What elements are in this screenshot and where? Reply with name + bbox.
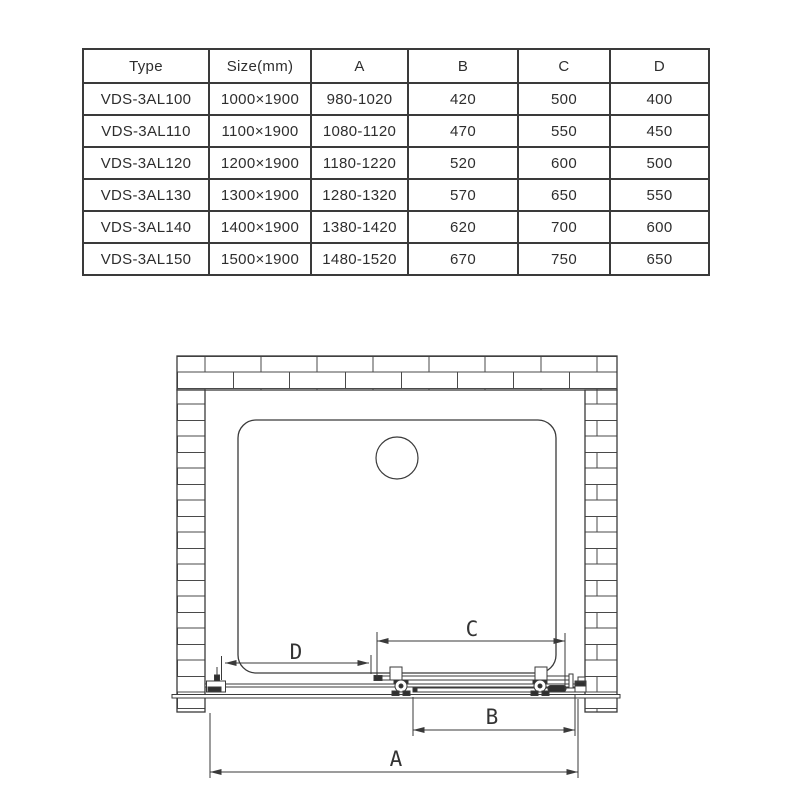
cell-d: 450 [610, 115, 709, 147]
table-row: VDS-3AL110 1100×1900 1080-1120 470 550 4… [83, 115, 709, 147]
cell-c: 750 [518, 243, 610, 275]
cell-d: 500 [610, 147, 709, 179]
cell-type: VDS-3AL110 [83, 115, 209, 147]
shower-enclosure-plan-drawing: D C B A [0, 340, 800, 800]
cell-c: 600 [518, 147, 610, 179]
cell-type: VDS-3AL120 [83, 147, 209, 179]
right-wall [585, 390, 617, 712]
header-size: Size(mm) [209, 49, 311, 83]
header-a: A [311, 49, 408, 83]
header-b: B [408, 49, 518, 83]
top-wall [177, 356, 617, 390]
drain-circle [376, 437, 418, 479]
cell-d: 550 [610, 179, 709, 211]
cell-a: 1280-1320 [311, 179, 408, 211]
cell-d: 650 [610, 243, 709, 275]
table-row: VDS-3AL120 1200×1900 1180-1220 520 600 5… [83, 147, 709, 179]
table-row: VDS-3AL140 1400×1900 1380-1420 620 700 6… [83, 211, 709, 243]
cell-a: 1180-1220 [311, 147, 408, 179]
dim-label-d: D [290, 640, 303, 664]
door-assembly [172, 667, 620, 698]
table-header-row: Type Size(mm) A B C D [83, 49, 709, 83]
table-row: VDS-3AL150 1500×1900 1480-1520 670 750 6… [83, 243, 709, 275]
panel1-left-clamp [374, 676, 382, 681]
cell-d: 400 [610, 83, 709, 115]
cell-size: 1000×1900 [209, 83, 311, 115]
header-c: C [518, 49, 610, 83]
cell-c: 550 [518, 115, 610, 147]
dim-label-b: B [486, 705, 499, 729]
cell-b: 670 [408, 243, 518, 275]
header-type: Type [83, 49, 209, 83]
table-row: VDS-3AL100 1000×1900 980-1020 420 500 40… [83, 83, 709, 115]
cell-c: 650 [518, 179, 610, 211]
fixed-panel-rail [205, 684, 583, 687]
cell-b: 570 [408, 179, 518, 211]
left-wall-profile [207, 667, 226, 692]
dim-label-a: A [390, 747, 403, 771]
cell-type: VDS-3AL150 [83, 243, 209, 275]
cell-c: 500 [518, 83, 610, 115]
cell-type: VDS-3AL130 [83, 179, 209, 211]
left-wall [177, 390, 205, 712]
cell-b: 520 [408, 147, 518, 179]
cell-type: VDS-3AL100 [83, 83, 209, 115]
dimension-a: A [210, 699, 578, 778]
shower-size-table: Type Size(mm) A B C D VDS-3AL100 1000×19… [82, 48, 710, 276]
cell-a: 1480-1520 [311, 243, 408, 275]
spec-table: Type Size(mm) A B C D VDS-3AL100 1000×19… [82, 48, 710, 276]
cell-b: 620 [408, 211, 518, 243]
installation-diagram: D C B A [0, 340, 800, 800]
right-wall-profile [575, 677, 586, 692]
table-row: VDS-3AL130 1300×1900 1280-1320 570 650 5… [83, 179, 709, 211]
cell-d: 600 [610, 211, 709, 243]
panel2-left-stop [413, 688, 417, 692]
dimension-b: B [413, 694, 575, 736]
cell-c: 700 [518, 211, 610, 243]
cell-b: 470 [408, 115, 518, 147]
cell-a: 980-1020 [311, 83, 408, 115]
cell-b: 420 [408, 83, 518, 115]
door-handle [548, 686, 566, 692]
cell-size: 1400×1900 [209, 211, 311, 243]
cell-a: 1080-1120 [311, 115, 408, 147]
cell-size: 1200×1900 [209, 147, 311, 179]
dim-label-c: C [466, 617, 479, 641]
cell-size: 1100×1900 [209, 115, 311, 147]
cell-a: 1380-1420 [311, 211, 408, 243]
cell-type: VDS-3AL140 [83, 211, 209, 243]
header-d: D [610, 49, 709, 83]
cell-size: 1300×1900 [209, 179, 311, 211]
cell-size: 1500×1900 [209, 243, 311, 275]
